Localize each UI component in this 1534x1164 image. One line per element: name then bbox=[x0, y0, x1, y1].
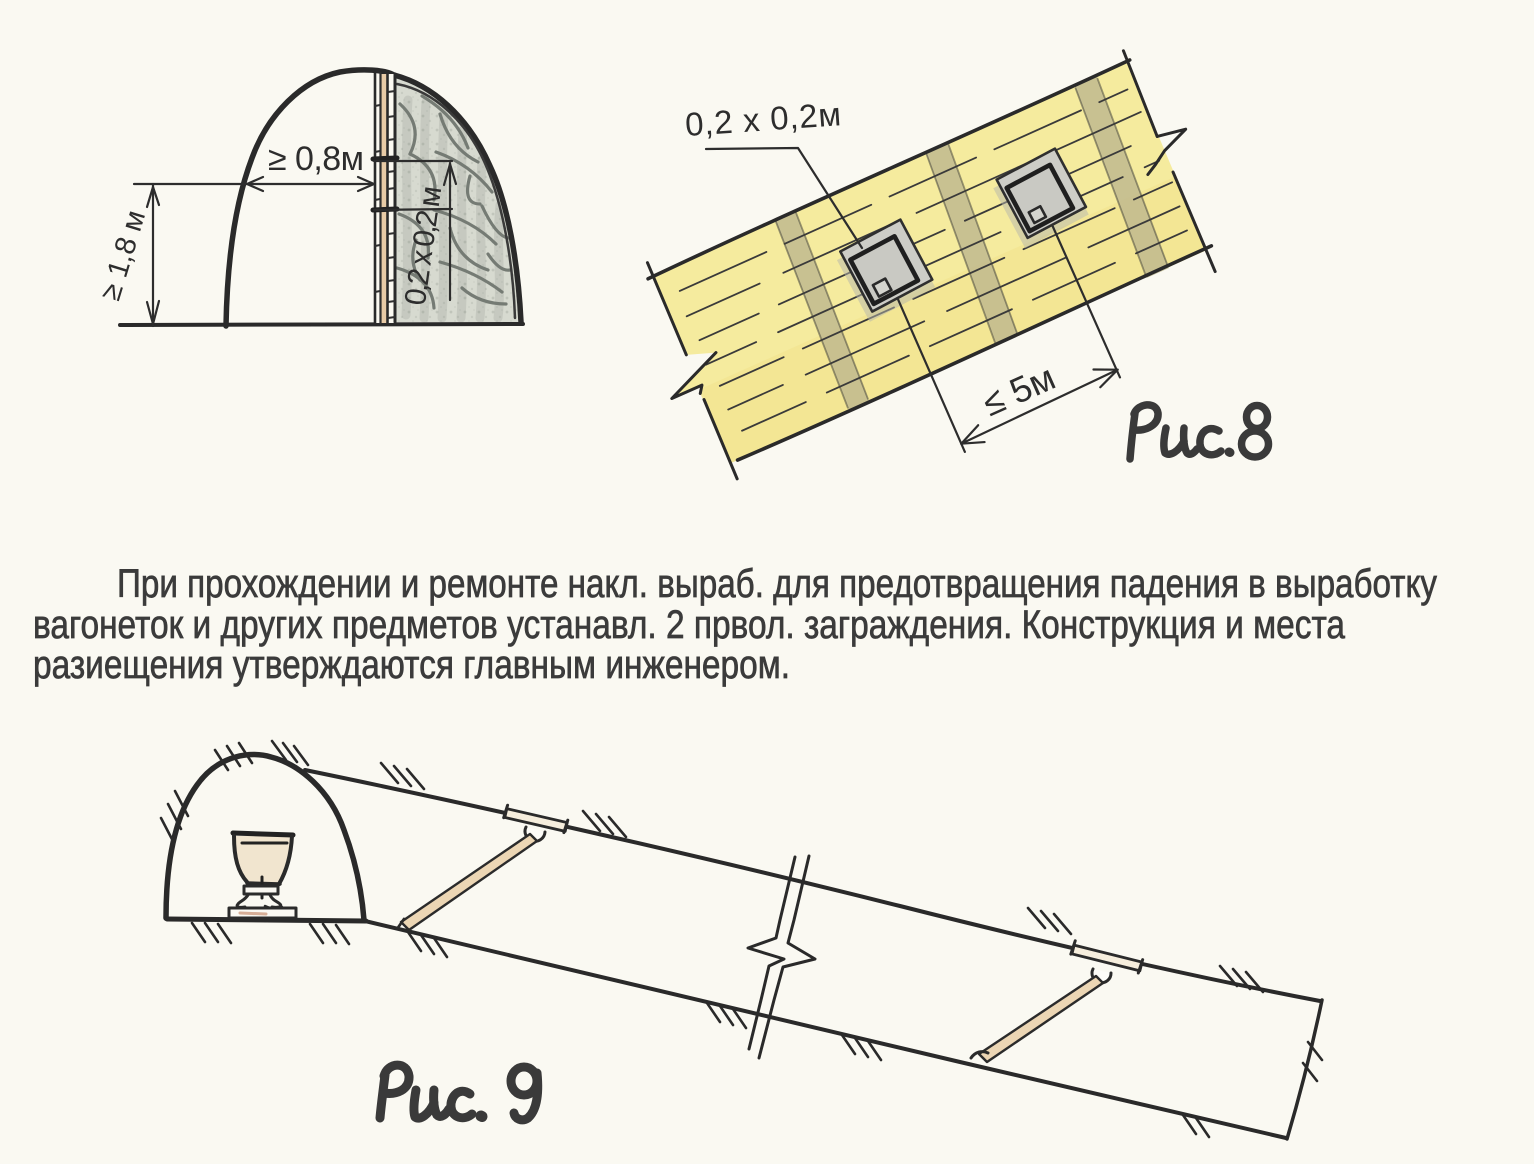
svg-text:≥ 0,8м: ≥ 0,8м bbox=[268, 140, 364, 178]
svg-text:вагонеток и других предметов у: вагонеток и других предметов устанавл. 2… bbox=[33, 603, 1346, 647]
svg-text:При прохождении и ремонте накл: При прохождении и ремонте накл. выраб. д… bbox=[117, 562, 1437, 606]
svg-text:разиещения утверждаются главны: разиещения утверждаются главным инженеро… bbox=[33, 643, 790, 687]
